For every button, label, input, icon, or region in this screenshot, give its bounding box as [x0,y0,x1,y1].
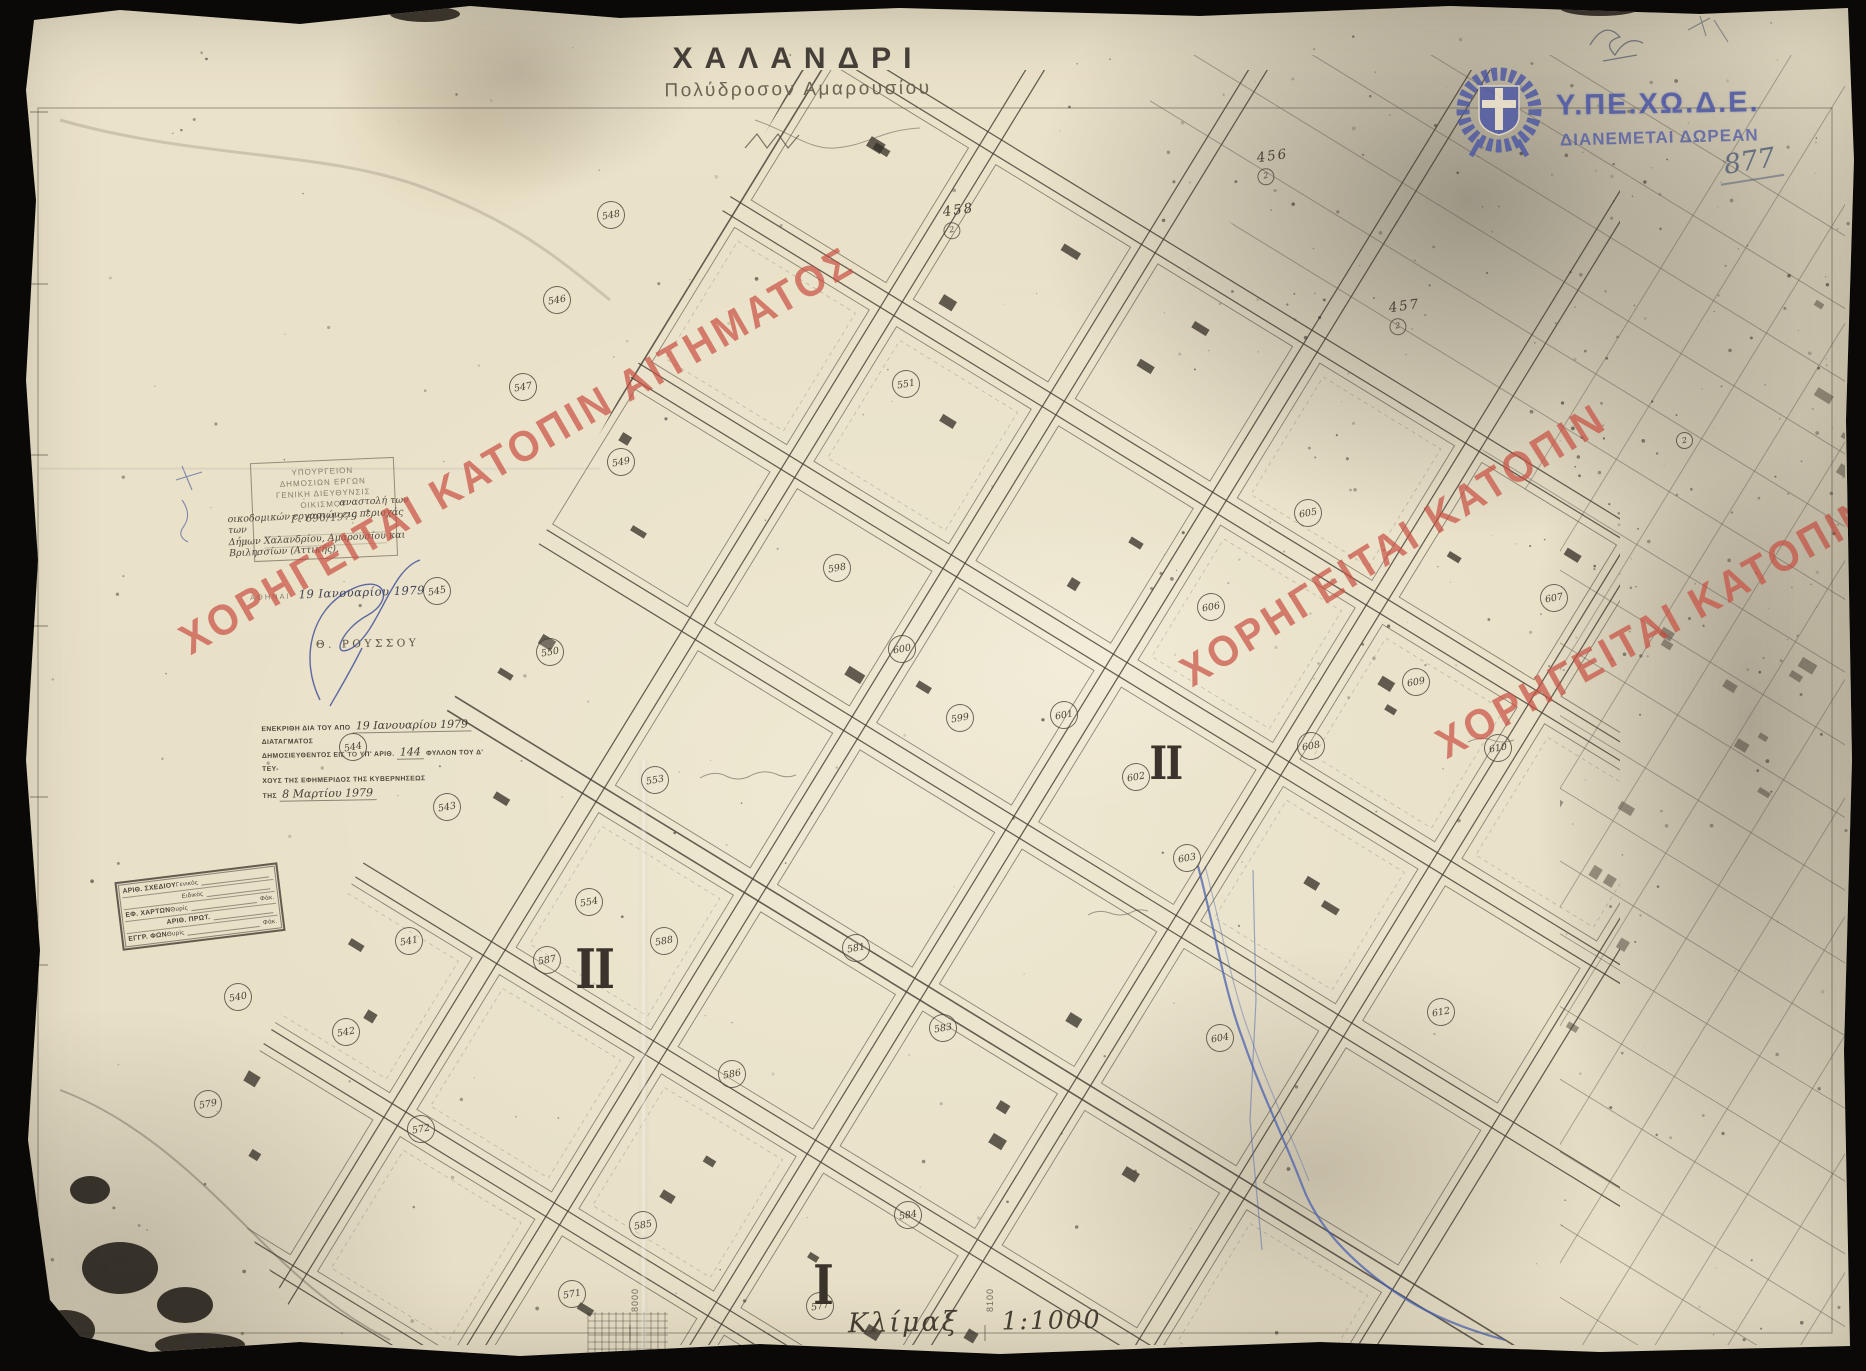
grid-coordinate-left: 7000 [5,107,29,117]
greek-state-emblem-icon [1444,52,1560,172]
pencil-scribble [1688,16,1728,42]
section-numeral-II: II [575,942,613,996]
decree-date-2: 8 Μαρτίου 1979 [279,786,376,802]
grid-coordinate-left: 6600 [5,792,29,802]
scanned-map-sheet: ΧΑΛΑΝΔΡΙ Πολύδροσον Αμαρουσίου Υ.ΠΕ.ΧΩ.Δ… [0,0,1866,1371]
decree-date-1: 19 Ιανουαρίου 1979 [353,717,472,733]
scale-label: Κλίμαξ [848,1306,959,1339]
stream-line [1198,866,1505,1340]
decree-approval-text: ΕΝΕΚΡΙΘΗ ΔΙΑ ΤΟΥ ΑΠΟ 19 Ιανουαρίου 1979 … [261,718,498,803]
stamp-signer-name: Θ. ΡΟΥΣΣΟΥ [316,637,419,651]
block-number-458: 4582 [942,200,978,240]
grid-coordinate-left: 6700 [5,621,29,631]
grid-coordinate-bottom: 8000 [630,1288,640,1312]
stamp-handwritten-text: αναστολή των οικοδομικών εργασιών εις πε… [227,494,425,560]
main-street-grid [0,0,1866,1371]
handwritten-annotation [700,772,796,779]
scale-value: 1:1000 [1001,1305,1101,1336]
pencil-scribble [1590,30,1643,61]
section-numeral-I: I [813,1258,832,1312]
grid-coordinate-bottom: 8100 [985,1288,995,1312]
map-scale: Κλίμαξ 1:1000 [848,1304,1102,1339]
map-title: ΧΑΛΑΝΔΡΙ [633,42,963,76]
paper-sheet: ΧΑΛΑΝΔΡΙ Πολύδροσον Αμαρουσίου Υ.ΠΕ.ΧΩ.Δ… [0,0,1866,1371]
fine-parcel-grid [14,0,1866,1371]
block-number-456: 4562 [1256,146,1292,186]
grid-coordinate-left: 6900 [5,279,29,289]
signature-flourish [310,560,420,706]
grid-coordinate-left: 6800 [5,450,29,460]
title-block: ΧΑΛΑΝΔΡΙ Πολύδροσον Αμαρουσίου [633,42,963,101]
boundary-line [1250,870,1262,1250]
grid-coordinate-left: 6500 [5,960,29,970]
block-number-457: 4572 [1388,296,1424,336]
section-numeral-II: II [1150,740,1182,786]
agency-name: Υ.ΠΕ.ΧΩ.Δ.Ε. [1556,86,1760,123]
decree-gazette-number: 144 [397,745,424,759]
street-grid-drawing [0,0,1866,1371]
map-subtitle: Πολύδροσον Αμαρουσίου [633,77,963,102]
handwritten-annotation [1088,910,1148,915]
